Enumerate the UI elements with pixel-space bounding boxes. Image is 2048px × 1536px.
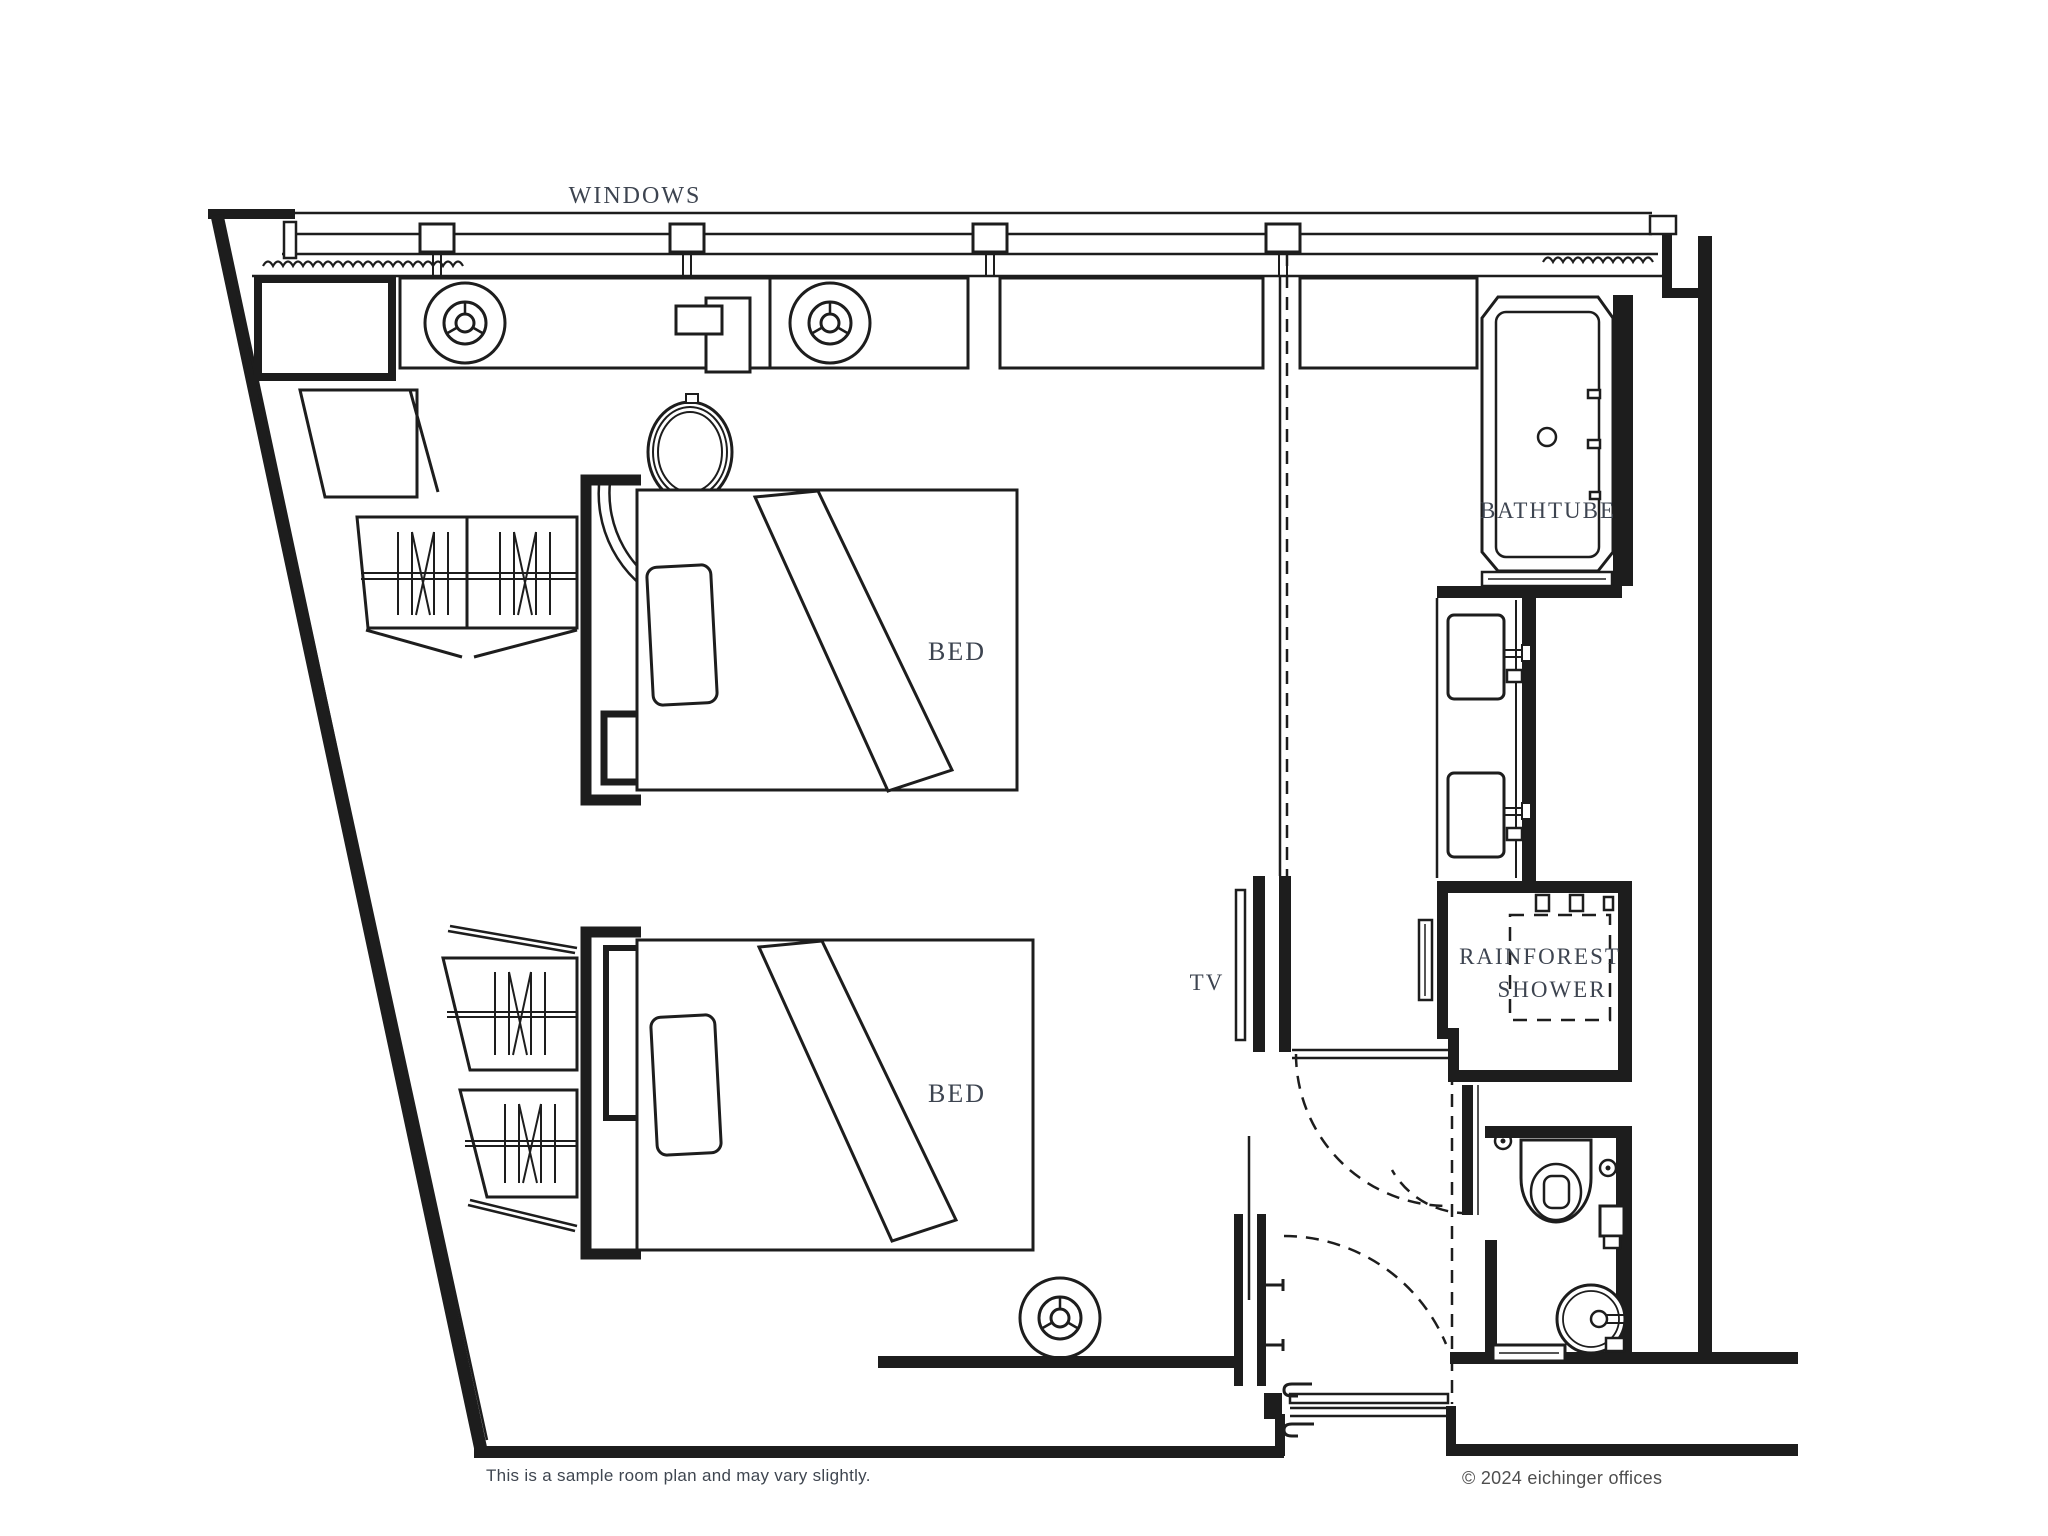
bath-counter (1300, 278, 1477, 368)
wardrobe-1 (357, 517, 577, 657)
rainforest-shower: RAINFOREST SHOWER (1419, 881, 1632, 1082)
toilet-room (1392, 1085, 1632, 1362)
bath-mat (1493, 1345, 1565, 1361)
bed-1-label: BED (928, 637, 986, 666)
luggage-rack-1 (443, 926, 577, 1070)
toilet-paper-holder-icon (1600, 1206, 1624, 1248)
toilet-icon (1521, 1140, 1591, 1222)
faucet-icon (1588, 390, 1600, 398)
bathtub-label: BATHTUBE (1480, 498, 1616, 523)
pillow-icon (650, 1014, 721, 1155)
floor-plan-page: WINDOWS (0, 0, 2048, 1536)
radiator-right (1543, 258, 1653, 263)
ceiling-fan-3 (1020, 1278, 1100, 1358)
shower-label-line1: RAINFOREST (1459, 944, 1621, 969)
tv-unit: TV (1190, 876, 1291, 1052)
window-band: WINDOWS (252, 183, 1676, 276)
shower-hook-icon (1536, 895, 1549, 911)
door-leaf (1290, 1394, 1448, 1403)
disclaimer-text: This is a sample room plan and may vary … (486, 1466, 871, 1485)
bed-2: BED (586, 932, 1033, 1254)
pillow-icon (646, 564, 717, 705)
bed-2-label: BED (928, 1079, 986, 1108)
luggage-rack-2 (460, 1090, 577, 1231)
door-handle-icon (1284, 1424, 1314, 1436)
towel-rail-icon (1419, 920, 1432, 1000)
window-console-units (400, 278, 1263, 368)
shower-hook-icon (1570, 895, 1583, 911)
entry-door (1284, 1236, 1448, 1436)
bed-1: BED (586, 480, 1017, 800)
corridor-door (1292, 1050, 1452, 1404)
toilet-door (1392, 1085, 1478, 1215)
shower-label-line2: SHOWER (1497, 977, 1606, 1002)
glass-partition (1280, 253, 1287, 876)
shower-hook-icon (1604, 897, 1613, 910)
floor-plan-canvas: WINDOWS (0, 0, 2048, 1536)
copyright-text: © 2024 eichinger offices (1462, 1468, 1662, 1488)
faucet-icon (1588, 440, 1600, 448)
window-mullions (420, 224, 1300, 276)
bathtub: BATHTUBE (1480, 295, 1633, 586)
sink-1 (1448, 615, 1531, 699)
entry-closet (1234, 1136, 1283, 1386)
windows-label: WINDOWS (569, 183, 702, 209)
tv-label: TV (1190, 970, 1225, 995)
vanity (1437, 586, 1622, 881)
tv-screen-icon (1236, 890, 1245, 1040)
window-right-notch (1650, 216, 1676, 234)
window-end-cap (284, 222, 296, 258)
sink-2 (1448, 773, 1531, 857)
